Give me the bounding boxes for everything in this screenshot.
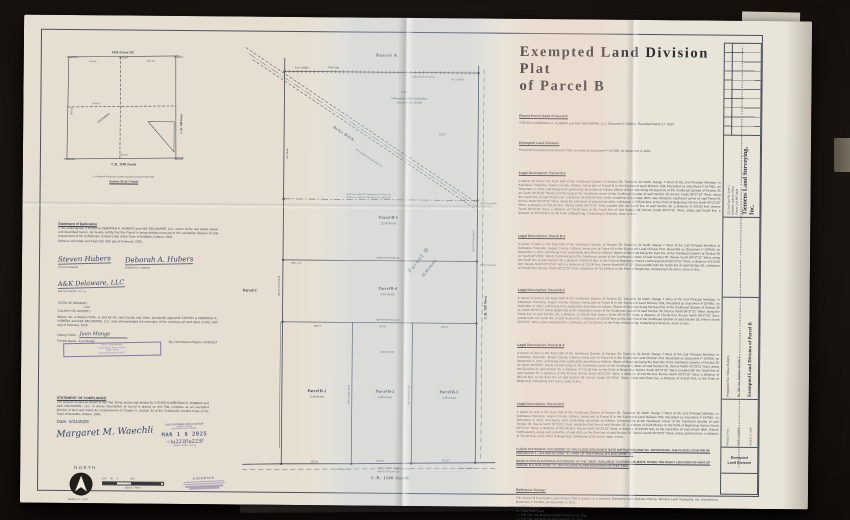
detail-dim: 2641.33' xyxy=(71,106,73,115)
plat-label-top-of-bank: Top of Bank xyxy=(287,149,289,160)
firm-name: Tiemens Land Surveying, Inc. xyxy=(741,138,756,215)
deed-heading: Parent Parcel Deed of Record: xyxy=(519,114,568,118)
title-line-1: Exempted Land Division Plat xyxy=(520,44,722,80)
paper-edge-shadow xyxy=(782,21,812,509)
field-scale: SCALE: 1"=100' xyxy=(749,401,752,446)
plat-east-bearing: S00°25'51"W 1329.07' xyxy=(473,229,475,251)
plat-label-cr-1100-north: C.R. 1100 North xyxy=(371,475,409,480)
sheet-fields: PROJECT NO. DATE: 11/20/24 SCALE: 1"=100… xyxy=(721,400,757,448)
detail-dim: 1321.20' xyxy=(147,61,156,63)
monument-triangle: \u25b4 xyxy=(119,55,129,59)
signature-steven-hubers: Steven Hubers xyxy=(58,255,111,265)
detail-map-caption: Δ = Record Found per Jasper County Surve… xyxy=(59,175,189,184)
sheet-name-line: Land Division xyxy=(727,460,751,465)
dedication-witness-line: Witness our hands and Seals this 18th da… xyxy=(58,240,218,245)
base-flood-statement: BASE FLOOD ELEVATIONS ACCORDING TO THE "… xyxy=(516,460,718,470)
detail-road-top: 10th Street SE xyxy=(112,50,135,54)
plat-dim: 441.7' (M&R) xyxy=(295,67,309,69)
notary-public-label: Notary Public: xyxy=(57,334,76,338)
field-date: DATE: 11/20/24 xyxy=(738,401,741,446)
north-arrow-group: NORTH SCALE: 1" = 100' xyxy=(68,465,97,501)
deed-body: STEVEN & DEBORAH A. HUBERS and A&K DELAW… xyxy=(519,122,721,128)
plat-road-dim: 335.00' xyxy=(442,460,450,462)
legal-b2-heading: Legal Description: Parcel B-2 xyxy=(518,234,565,238)
plat-label-parcel-b3: Parcel B-3 xyxy=(440,389,459,394)
plat-label-pob-b5: (P.O.B. Parcel B-5) xyxy=(480,202,496,205)
general-notes-block xyxy=(723,218,760,298)
plat-label-akllc: (A&K, LLC) xyxy=(291,261,301,264)
plat-label-parcel-b1-acres: 5.49 Acres xyxy=(310,395,325,399)
north-arrow-icon xyxy=(68,471,94,497)
plat-label-parcel-b5-acres: 12.56 Acres xyxy=(380,221,396,225)
detail-township-label: Kankakee xyxy=(96,112,110,124)
legal-b3-body: A parcel of land in the East Half of the… xyxy=(517,297,719,326)
title-block-strip: 222 3rd Court St. Suite 1 DeMotte, India… xyxy=(720,43,762,495)
detail-dim: 1319.67' xyxy=(120,154,129,156)
plat-label-parcel-a: Parcel A xyxy=(376,53,398,58)
plat-label-subdivision-doc: Document No. 148488 xyxy=(397,101,423,104)
notary-signature: Juan Monge xyxy=(80,331,128,338)
plat-dim: 305.00' xyxy=(379,326,387,328)
notary-commission: My Commission Expires: 8/26/2027 xyxy=(169,341,218,345)
plat-section-line-label: North Line, South 1/2, Southeast 1/4, Se… xyxy=(346,193,391,196)
plat-road-dim: 335.00' xyxy=(311,461,319,463)
plat-label-parcel-c: Parcel C xyxy=(243,287,258,292)
plat-dim: 441.7' (M&R) xyxy=(451,79,464,81)
plat-dim: (Shelterbelt Tree Row) xyxy=(413,75,435,78)
plat-label-farm-field: (Farm Field) xyxy=(380,351,394,354)
plat-label-parcel-b1: Parcel B-1 xyxy=(308,388,327,393)
notary-stamp-line: Commission Expires 8/26/2027 xyxy=(66,351,158,355)
plat-label-parcel-b3-acres: 5.00 Acres xyxy=(442,396,457,400)
compliance-body: The Division of land as shown in this Pl… xyxy=(57,401,209,418)
notary-block: STATE OF INDIANA ) ) SS: COUNTY OF JASPE… xyxy=(57,302,217,345)
taxation-stamp: DULY ENTERED FOR TAXATION Subject to Fin… xyxy=(148,422,221,448)
endorsed-stamp: ENDORSED xyxy=(181,475,228,491)
legal-b5-body: A parcel of land in the East Half of the… xyxy=(516,411,718,440)
section-detail-map: 10th Street SE C.R. 1100 North C.R. 700 … xyxy=(56,45,193,176)
monument-triangle: \u25b4 xyxy=(174,55,184,59)
notary-body: Before me, a Notary Public, in and for t… xyxy=(57,316,217,329)
legal-b4-heading: Legal Description: Parcel B-4 xyxy=(517,343,564,347)
scale-bar: 100 50 0 100 SCALE - FEET xyxy=(102,477,164,489)
monument-triangle: \u25b4 xyxy=(66,157,76,161)
detail-road-bottom: C.R. 1100 North xyxy=(111,162,136,166)
plat-division-bearing: N00°22'28"W 713.06' xyxy=(408,384,410,404)
project-title: Exempted Land Division of Parcel B xyxy=(748,300,754,397)
firm-address: 222 3rd Court St. Suite 1 DeMotte, India… xyxy=(727,138,740,215)
plat-label-cr-700-west: C.R. 700 West xyxy=(484,295,488,319)
plat-label-parcel-b4: Parcel B-4 xyxy=(378,286,398,291)
project-title-block: Prepared For: Steve Hubers Pt. SE 1/4, S… xyxy=(722,298,759,400)
project-location: Pt. SE 1/4, Section 35-32-7 xyxy=(737,300,742,397)
monument-triangle: \u25b4 xyxy=(174,157,184,161)
plat-label-pob-b1: (P.O.B. Parcel B-1) xyxy=(335,469,351,471)
plat-road-dim: 310.00' xyxy=(377,461,385,463)
division-body: Parcel B, Exempted Land Division Plat, r… xyxy=(519,149,721,155)
background-object xyxy=(834,138,850,172)
plat-label-subdivision: International UBC Subdivision xyxy=(392,96,428,100)
notary-seal-stamp: SEAL – JUAN MONGE Notary Public, State o… xyxy=(63,341,161,357)
plat-label-ditch-easement: (60' Regulated Drainage Easement) xyxy=(355,148,383,168)
scale-label: SCALE: 1" = 100' xyxy=(68,498,96,501)
detail-dim: 1320.87' xyxy=(89,61,98,63)
printed-name: STEVEN HUBERS xyxy=(58,266,111,269)
plat-label-oyler-ditch: Oyler Ditch xyxy=(332,125,355,142)
plat-section-line-label: South Line, North 1/2, Southeast 1/4, Se… xyxy=(346,196,391,199)
plat-label-pob-b3: (P.O.B. Parcel B-3) xyxy=(459,468,475,470)
detail-road-right: C.R. 700 West xyxy=(179,113,183,133)
plat-label-lot1: Lot 1 xyxy=(401,90,408,94)
photographed-plat-scene: 10th Street SE C.R. 1100 North C.R. 700 … xyxy=(0,0,850,520)
plat-label-pob-b4: (P.O.B. Parcel B-4) xyxy=(480,264,496,267)
plat-drawing: Parcel A 441.7' (M&R) Field Edge (Shelte… xyxy=(238,33,504,487)
plat-label-parcel-b5: Parcel B-5 xyxy=(379,215,398,220)
north-label: NORTH xyxy=(74,465,96,470)
monument-triangle: \u25b4 xyxy=(69,55,79,59)
plat-road-bearing: N89°37'19"E 947.03' xyxy=(377,470,400,473)
signature-deborah-hubers: Deborah A. Hubers xyxy=(125,255,194,265)
plat-bearing: N89°37'32"E 941.46' xyxy=(377,257,401,260)
division-heading: Exempted Land Division: xyxy=(519,141,560,145)
detail-dim: 2640.07' xyxy=(92,103,101,105)
scale-bar-caption: SCALE - FEET xyxy=(102,486,164,490)
plat-label-parcel-b2: Parcel B-2 xyxy=(376,389,395,394)
legal-b1-heading: Legal Description: Parcel B-1 xyxy=(519,171,566,175)
statement-of-dedication: Statement of Dedication I, the undersign… xyxy=(58,222,219,295)
field-project-no: PROJECT NO. xyxy=(727,401,730,446)
plat-dim: 306.46' xyxy=(441,327,449,329)
dedication-body: I, the undersigned, STEVEN & DEBORAH A. … xyxy=(58,227,218,240)
plat-label-pob-b2: (P.O.B. Parcel B-2) xyxy=(396,468,412,470)
prepared-for: Prepared For: Steve Hubers xyxy=(726,300,731,397)
plat-bearing: N89°37'32"E 941.46' xyxy=(376,319,400,322)
plat-label-lot2: Lot 2 xyxy=(439,132,446,136)
sheet-name-box: Exempted Land Division xyxy=(721,448,757,474)
legal-b4-body: A parcel of land in the East Half of the… xyxy=(517,352,719,385)
plat-text-column: Exempted Land Division Plat of Parcel B … xyxy=(515,44,722,520)
legal-b5-heading: Legal Description: Parcel B-5 xyxy=(517,402,564,406)
legal-b1-body: A parcel of land in the East Half of the… xyxy=(518,180,720,217)
legal-b3-heading: Legal Description: Parcel B-3 xyxy=(518,288,565,292)
flood-statement: FLOOD STATEMENT: ACCORDING TO THE FLOOD … xyxy=(516,448,718,458)
reference-survey-heading: Reference Survey: xyxy=(516,488,546,492)
plat-division-bearing: N00°22'28"W 713.06' xyxy=(348,384,350,404)
plat-dim: Field Edge xyxy=(328,67,340,69)
plat-dim: 230.77' xyxy=(314,326,322,328)
legal-b2-body: A parcel of land in the East Half of the… xyxy=(518,243,720,272)
plat-label-parcel-b4-acres: 8.87 Acres xyxy=(381,292,396,296)
tax-date-stamp: MAR 1 8 2025 xyxy=(148,431,220,439)
title-line-2: of Parcel B xyxy=(519,78,721,97)
page-title: Exempted Land Division Plat of Parcel B xyxy=(519,44,721,97)
plat-document-paper: 10th Street SE C.R. 1100 North C.R. 700 … xyxy=(20,15,812,510)
strip-empty xyxy=(721,474,757,494)
signature-ak-delaware: A&K Delaware, LLC xyxy=(58,279,125,290)
plat-west-bearing: N00°23'15"W 979.34' xyxy=(279,275,281,296)
printed-name: DEBORAH A. HUBERS xyxy=(125,267,193,271)
plat-label-parcel-b2-acres: 5.00 Acres xyxy=(378,395,393,399)
